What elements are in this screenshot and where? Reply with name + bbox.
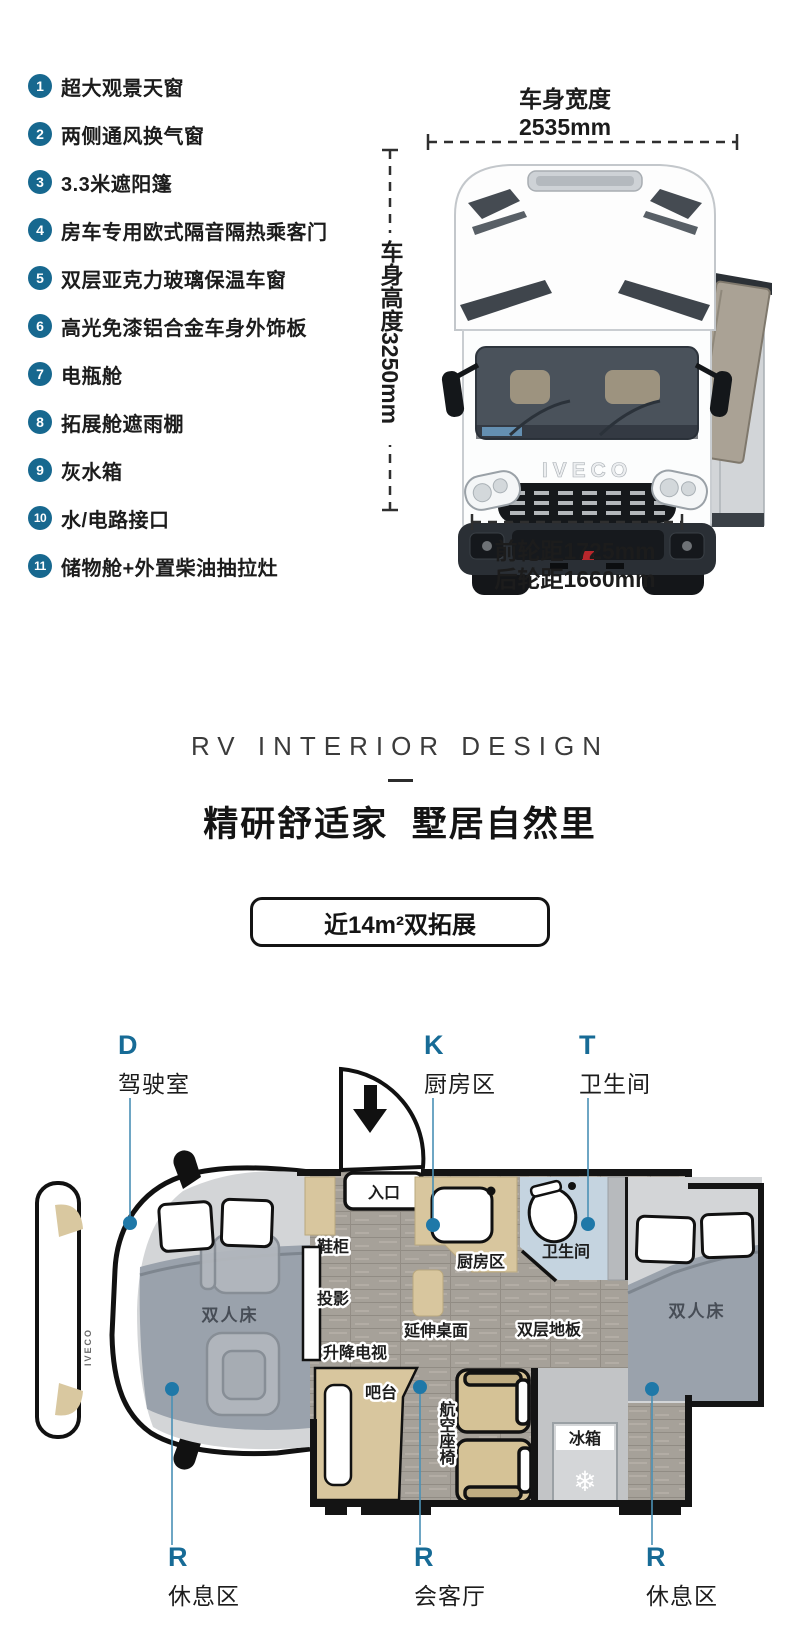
zone-label-lounge: R 会客厅 [414, 1544, 574, 1611]
fridge-label: 冰箱 [569, 1429, 601, 1448]
projector-label: 投影 [317, 1289, 349, 1308]
zone-name: 休息区 [168, 1577, 328, 1611]
zone-letter: R [168, 1544, 328, 1571]
list-item: 10水/电路接口 [28, 494, 328, 542]
double-floor-label: 双层地板 [517, 1320, 582, 1339]
divider-dash [388, 779, 413, 782]
number-badge: 5 [28, 266, 52, 290]
number-badge: 2 [28, 122, 52, 146]
bar-label: 吧台 [365, 1383, 397, 1402]
front-bed-label: 双人床 [202, 1305, 259, 1325]
floorplan-svg: IVECO 双人床 [25, 1055, 775, 1545]
list-item: 9灰水箱 [28, 446, 328, 494]
zone-label-rest-left: R 休息区 [168, 1544, 328, 1611]
feature-text: 3.3米遮阳篷 [61, 168, 172, 197]
feature-text: 储物舱+外置柴油抽拉灶 [61, 552, 278, 581]
list-item: 7电瓶舱 [28, 350, 328, 398]
feature-text: 灰水箱 [61, 456, 123, 485]
extension-table [413, 1270, 443, 1316]
list-item: 11储物舱+外置柴油抽拉灶 [28, 542, 328, 590]
list-item: 33.3米遮阳篷 [28, 158, 328, 206]
feature-list: 1超大观景天窗 2两侧通风换气窗 33.3米遮阳篷 4房车专用欧式隔音隔热乘客门… [28, 62, 328, 590]
seat-divider-wall [531, 1368, 538, 1503]
number-badge: 7 [28, 362, 52, 386]
fridge-area: 冰箱 ❄ [538, 1368, 628, 1503]
bathroom-area: 卫生间 [520, 1177, 629, 1281]
list-item: 1超大观景天窗 [28, 62, 328, 110]
faucet [487, 1187, 496, 1196]
number-badge: 3 [28, 170, 52, 194]
feature-text: 双层亚克力玻璃保温车窗 [61, 264, 287, 293]
feature-text: 电瓶舱 [61, 360, 123, 389]
number-badge: 9 [28, 458, 52, 482]
zone-letter: R [646, 1544, 800, 1571]
rv-front-figure: 车身宽度 2535mm 车身高度3250mm [360, 75, 790, 600]
cab-brand-text: IVECO [83, 1328, 93, 1366]
extension-table-label: 延伸桌面 [403, 1321, 468, 1340]
entrance-door: 入口 [341, 1069, 423, 1209]
zone-letter: R [414, 1544, 574, 1571]
shoe-cabinet [305, 1177, 335, 1235]
feature-text: 房车专用欧式隔音隔热乘客门 [61, 216, 328, 245]
number-badge: 10 [28, 506, 52, 530]
overcab [455, 165, 715, 330]
height-dimension-label: 车身高度3250mm [377, 239, 404, 424]
feature-text: 水/电路接口 [61, 504, 170, 533]
rear-track-value: 后轮距1660mm [494, 566, 655, 592]
page: 1超大观景天窗 2两侧通风换气窗 33.3米遮阳篷 4房车专用欧式隔音隔热乘客门… [0, 0, 800, 1642]
zone-label-rest-right: R 休息区 [646, 1544, 800, 1611]
number-badge: 1 [28, 74, 52, 98]
feature-text: 两侧通风换气窗 [61, 120, 205, 149]
zone-name: 休息区 [646, 1577, 800, 1611]
number-badge: 11 [28, 554, 52, 578]
zone-name: 会客厅 [414, 1577, 574, 1611]
number-badge: 8 [28, 410, 52, 434]
shoe-cabinet-label: 鞋柜 [317, 1237, 349, 1256]
front-track-value: 前轮距1725mm [494, 538, 655, 564]
number-badge: 6 [28, 314, 52, 338]
width-dimension-label: 车身宽度 [519, 86, 612, 112]
rear-bed-label: 双人床 [669, 1301, 726, 1321]
section-eyebrow: RV INTERIOR DESIGN [0, 731, 800, 762]
list-item: 2两侧通风换气窗 [28, 110, 328, 158]
feature-text: 拓展舱遮雨棚 [61, 408, 184, 437]
section-title: 精研舒适家 墅居自然里 [0, 796, 800, 847]
list-item: 5双层亚克力玻璃保温车窗 [28, 254, 328, 302]
front-bed-area: 双人床 [137, 1171, 310, 1449]
expansion-badge: 近14m²双拓展 [250, 897, 550, 947]
snowflake-icon: ❄ [573, 1466, 596, 1497]
list-item: 4房车专用欧式隔音隔热乘客门 [28, 206, 328, 254]
bathroom-floor-label: 卫生间 [542, 1242, 590, 1261]
list-item: 6高光免漆铝合金车身外饰板 [28, 302, 328, 350]
brand-logo: IVECO [542, 459, 632, 482]
kitchen-floor-label: 厨房区 [457, 1252, 505, 1271]
feature-text: 超大观景天窗 [61, 72, 184, 101]
lift-tv-label: 升降电视 [323, 1343, 387, 1362]
list-item: 8拓展舱遮雨棚 [28, 398, 328, 446]
number-badge: 4 [28, 218, 52, 242]
feature-text: 高光免漆铝合金车身外饰板 [61, 312, 307, 341]
sink [432, 1188, 492, 1242]
width-dimension-value: 2535mm [519, 114, 611, 140]
entrance-label: 入口 [368, 1184, 400, 1202]
